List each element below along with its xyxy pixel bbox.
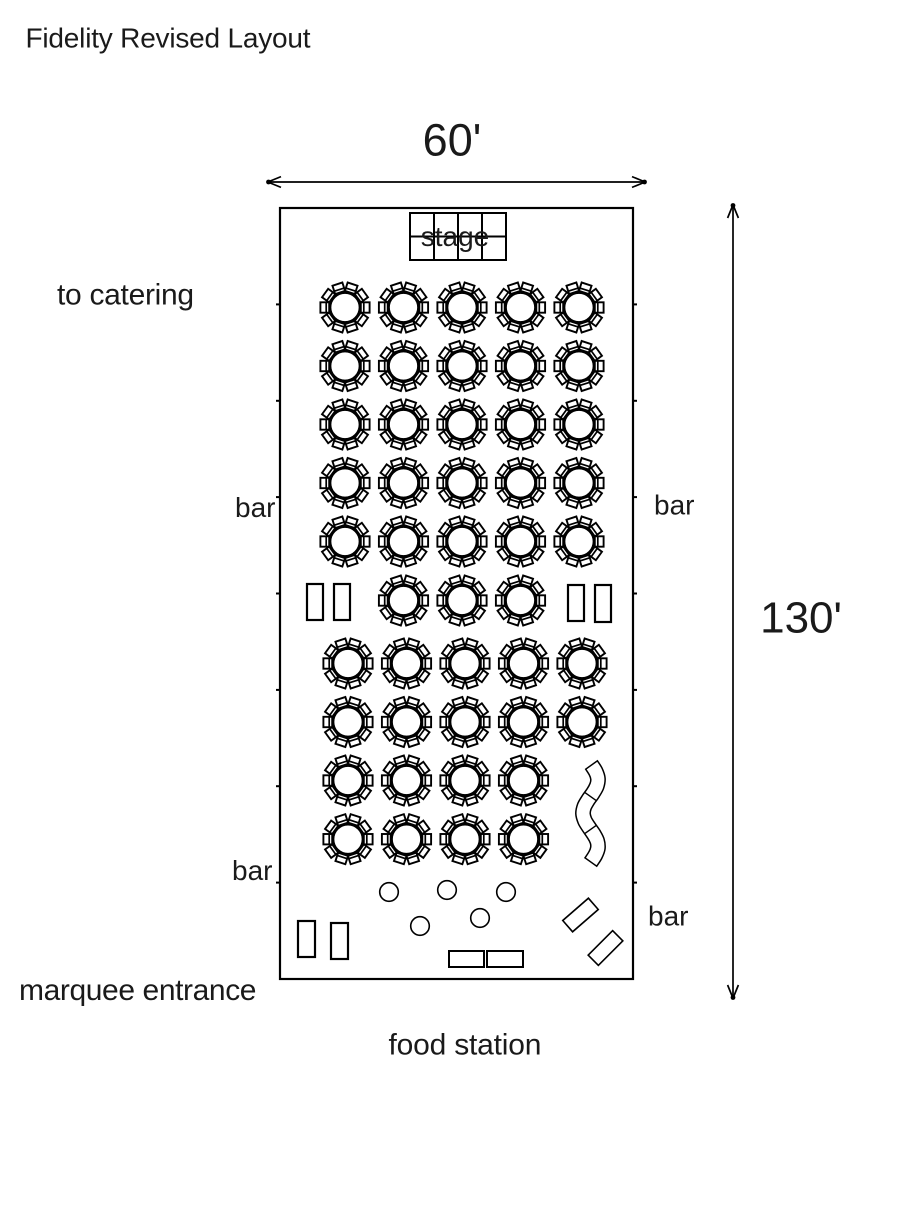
svg-text:bar: bar xyxy=(648,901,688,932)
svg-text:bar: bar xyxy=(654,490,694,521)
svg-text:130': 130' xyxy=(760,594,842,643)
svg-text:Fidelity Revised Layout: Fidelity Revised Layout xyxy=(26,23,311,54)
svg-text:marquee entrance: marquee entrance xyxy=(19,974,256,1007)
svg-text:bar: bar xyxy=(232,855,272,886)
svg-text:stage: stage xyxy=(421,221,490,252)
svg-text:food station: food station xyxy=(389,1029,542,1062)
svg-text:to catering: to catering xyxy=(57,279,194,312)
svg-text:60': 60' xyxy=(423,115,482,166)
svg-text:bar: bar xyxy=(235,492,275,523)
